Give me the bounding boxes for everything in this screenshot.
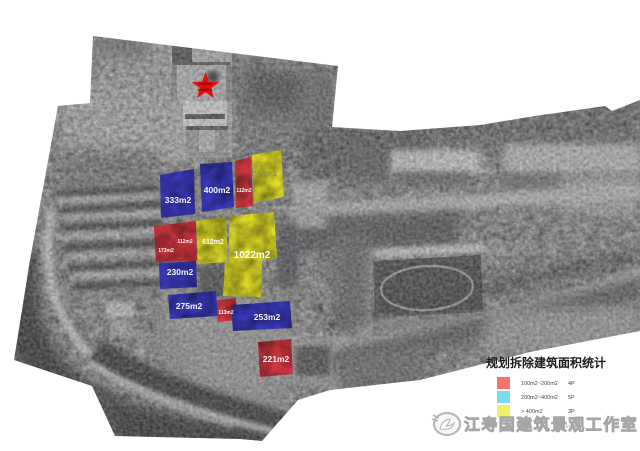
svg-text:> 400m2: > 400m2 [521, 409, 543, 415]
svg-text:112m2: 112m2 [177, 239, 193, 245]
svg-text:585m-2: 585m-2 [253, 171, 277, 178]
svg-text:221m2: 221m2 [263, 354, 290, 364]
svg-text:113m2: 113m2 [218, 310, 234, 316]
svg-text:333m2: 333m2 [165, 195, 192, 205]
svg-text:1022m2: 1022m2 [234, 250, 271, 261]
svg-text:612m2: 612m2 [202, 239, 224, 246]
svg-text:江寿国建筑景观工作室: 江寿国建筑景观工作室 [464, 415, 638, 434]
svg-text:3P: 3P [568, 409, 575, 415]
svg-text:200m2~400m2: 200m2~400m2 [521, 395, 558, 401]
svg-text:4P: 4P [568, 381, 575, 387]
svg-text:230m2: 230m2 [167, 267, 194, 277]
svg-text:112m2: 112m2 [236, 188, 252, 194]
svg-text:5P: 5P [568, 395, 575, 401]
svg-text:400m2: 400m2 [204, 185, 231, 195]
svg-text:275m2: 275m2 [176, 301, 203, 311]
svg-text:规划拆除建筑面积统计: 规划拆除建筑面积统计 [486, 355, 606, 370]
svg-text:173m2: 173m2 [158, 248, 174, 254]
svg-text:100m2~200m2: 100m2~200m2 [521, 381, 558, 387]
svg-text:253m2: 253m2 [254, 312, 281, 322]
